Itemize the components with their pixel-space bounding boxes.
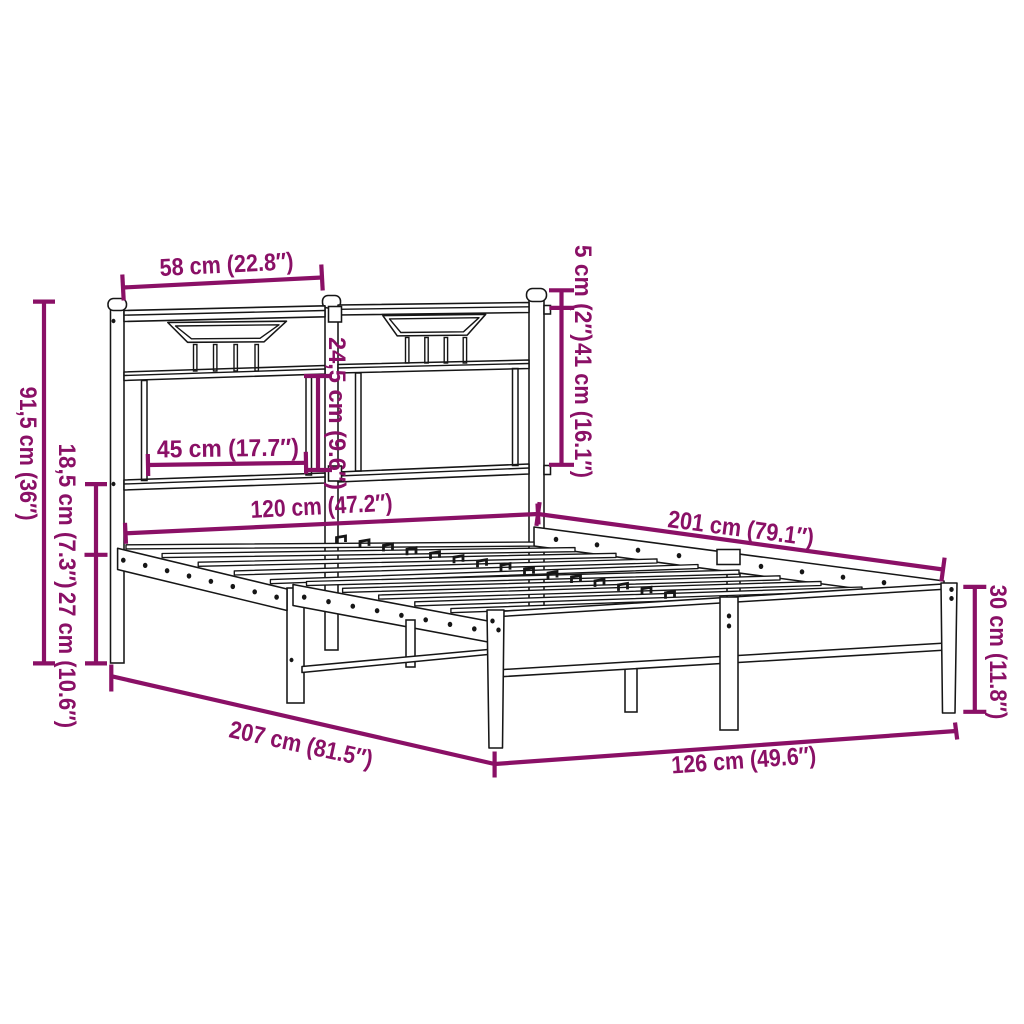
svg-text:5 cm (2″): 5 cm (2″) bbox=[569, 245, 596, 342]
svg-text:91,5 cm (36″): 91,5 cm (36″) bbox=[14, 387, 41, 521]
svg-text:30 cm (11.8″): 30 cm (11.8″) bbox=[984, 585, 1011, 720]
svg-text:18,5 cm (7.3″): 18,5 cm (7.3″) bbox=[53, 444, 80, 589]
svg-text:45 cm (17.7″): 45 cm (17.7″) bbox=[157, 435, 299, 464]
svg-text:27 cm (10.6″): 27 cm (10.6″) bbox=[53, 592, 80, 728]
svg-text:24,5 cm (9.6″): 24,5 cm (9.6″) bbox=[323, 337, 350, 490]
svg-text:41 cm (16.1″): 41 cm (16.1″) bbox=[569, 343, 596, 478]
